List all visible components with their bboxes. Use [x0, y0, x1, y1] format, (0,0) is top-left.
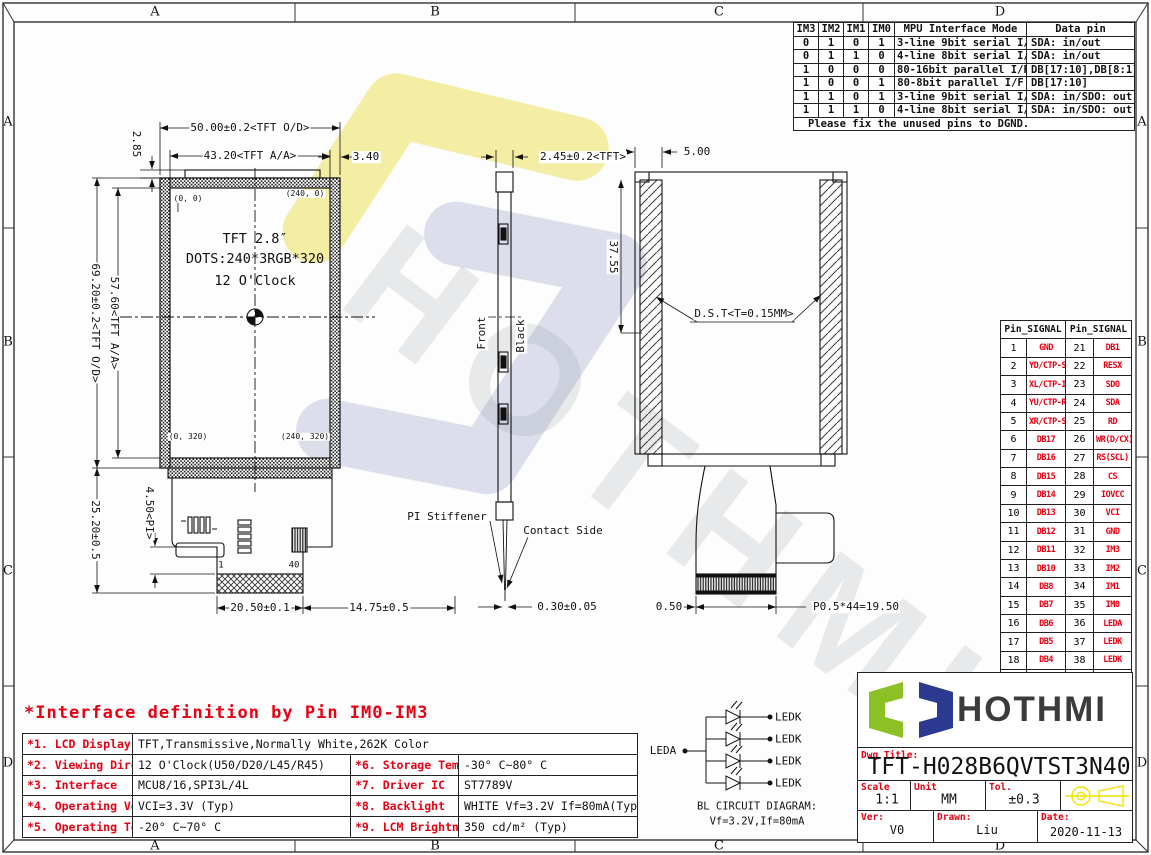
im-table-cell: 1 — [869, 90, 895, 104]
im-table-header: IM1 — [844, 23, 869, 37]
bl-caption-1: BL CIRCUIT DIAGRAM: — [696, 801, 818, 812]
ledk-terminal — [768, 781, 772, 785]
dim-back-height: 37.55 — [607, 239, 619, 274]
spec-value: MCU8/16,SPI3L/4L — [133, 775, 351, 796]
led-diode-icon — [726, 710, 740, 724]
dim-half: 0.50 — [655, 601, 684, 613]
pin-number: 38 — [1066, 651, 1094, 669]
pin-number: 28 — [1066, 468, 1094, 486]
pin-signal: CS — [1094, 468, 1132, 486]
pin-number: 24 — [1066, 394, 1094, 412]
im-table-cell: 4-line 8bit serial I/F — [895, 50, 1027, 64]
im-table-cell: SDA: in/out — [1027, 50, 1135, 64]
im-table-cell: SDA: in/SDO: out — [1027, 90, 1135, 104]
pin-number: 29 — [1066, 486, 1094, 504]
spec-label: *2. Viewing Diretion — [23, 754, 133, 775]
dim-pi: 4.50<PI> — [143, 486, 155, 541]
pin-signal: XR/CTP-SCL — [1027, 412, 1066, 430]
spec-value: 12 O'Clock(U50/D20/L45/R45) — [133, 754, 351, 775]
pin-signal: DB6 — [1027, 615, 1066, 633]
im-table-header: Data pin — [1027, 23, 1135, 37]
spec-label: *4. Operating Voltage — [23, 796, 133, 817]
pin-number: 12 — [1001, 541, 1027, 559]
spec-value: -30° C~80° C — [459, 754, 638, 775]
pin-signal: VCI — [1094, 504, 1132, 522]
pin-signal: DB1 — [1094, 339, 1132, 357]
led-branch — [706, 701, 770, 724]
pin-signal: SDO — [1094, 376, 1132, 394]
spec-label: *7. Driver IC — [351, 775, 459, 796]
pin-signal: YD/CTP-SDA — [1027, 357, 1066, 375]
pin-number: 35 — [1066, 596, 1094, 614]
im-table-cell: 1 — [844, 50, 869, 64]
dim-connector-width: 20.50±0.1 — [229, 602, 291, 614]
pin-number: 4 — [1001, 394, 1027, 412]
im-table-cell: 0 — [869, 50, 895, 64]
pin-number: 33 — [1066, 559, 1094, 577]
pin-number: 31 — [1066, 523, 1094, 541]
spec-label: *1. LCD Display Type — [23, 734, 133, 755]
im-table-header: IM3 — [794, 23, 819, 37]
spec-table-title: *Interface definition by Pin IM0-IM3 — [24, 703, 428, 723]
dim-tail-thickness: 0.30±0.05 — [536, 601, 598, 613]
pin-signal: GND — [1094, 523, 1132, 541]
pin-signal: SDA — [1094, 394, 1132, 412]
im-table-cell: 0 — [794, 36, 819, 50]
tol-value: ±0.3 — [1008, 793, 1039, 808]
im-table-cell: 1 — [844, 104, 869, 118]
scale-value: 1:1 — [875, 793, 898, 808]
front-label: Front — [476, 315, 488, 350]
im-table-cell: 0 — [844, 77, 869, 91]
contact-side-label: Contact Side — [522, 525, 603, 537]
spec-value: ST7789V — [459, 775, 638, 796]
pin-number: 21 — [1066, 339, 1094, 357]
im-table-header: IM0 — [869, 23, 895, 37]
pin-signal: LEDK — [1094, 633, 1132, 651]
pin-signal: WR(D/CX) — [1094, 431, 1132, 449]
pin-number: 2 — [1001, 357, 1027, 375]
im-table-footer: Please fix the unused pins to DGND. — [794, 117, 1135, 131]
pin-number: 18 — [1001, 651, 1027, 669]
pin-signal: DB10 — [1027, 559, 1066, 577]
pin-number: 8 — [1001, 468, 1027, 486]
brand-wordmark: HOTHMI — [957, 690, 1107, 730]
pin-signal: DB4 — [1027, 651, 1066, 669]
unit-label: Unit — [914, 782, 937, 793]
im-table-cell: 0 — [844, 90, 869, 104]
im-table-cell: 1 — [794, 77, 819, 91]
pin-signal: RD — [1094, 412, 1132, 430]
dim-od-width: 50.00±0.2<TFT O/D> — [189, 122, 310, 134]
pin-signal: DB17 — [1027, 431, 1066, 449]
drawn-value: Liu — [976, 823, 998, 837]
corner-label-br: (240, 320) — [280, 433, 330, 441]
dwg-title-value: TFT-H028B6QVTST3N40 — [867, 754, 1130, 780]
pin-signal: LEDK — [1094, 651, 1132, 669]
im-table-cell: 3-line 9bit serial I/F Ⅱ — [895, 90, 1027, 104]
ver-label: Ver: — [861, 812, 884, 823]
panel-label-dots: DOTS:240*3RGB*320 — [185, 252, 325, 266]
ledk-label: LEDK — [774, 777, 803, 790]
im-table-cell: 80-16bit parallel I/F — [895, 63, 1027, 77]
pin40-label: 40 — [288, 561, 301, 570]
pin-number: 23 — [1066, 376, 1094, 394]
spec-value: 350 cd/m² (Typ) — [459, 817, 638, 838]
im-table-cell: 4-line 8bit serial I/F Ⅱ — [895, 104, 1027, 118]
ledk-terminal — [768, 715, 772, 719]
spec-value: VCI=3.3V (Typ) — [133, 796, 351, 817]
led-diode-icon — [726, 754, 740, 768]
im-table-cell: DB[17:10] — [1027, 77, 1135, 91]
im-table-header: IM2 — [819, 23, 844, 37]
pin-number: 11 — [1001, 523, 1027, 541]
pin-signal: DB14 — [1027, 486, 1066, 504]
pin-signal: IM1 — [1094, 578, 1132, 596]
im-table-cell: 3-line 9bit serial I/F — [895, 36, 1027, 50]
pin-signal: IM0 — [1094, 596, 1132, 614]
corner-label-tl: (0, 0) — [173, 195, 204, 203]
panel-label-size: TFT 2.8″ — [221, 232, 288, 246]
date-label: Date: — [1041, 812, 1070, 823]
im-interface-table: IM3IM2IM1IM0MPU Interface ModeData pin01… — [793, 22, 1135, 131]
pin-number: 25 — [1066, 412, 1094, 430]
led-diode-icon — [726, 776, 740, 790]
corner-label-tr: (240, 0) — [285, 190, 326, 198]
im-table-cell: 0 — [794, 50, 819, 64]
ver-value: V0 — [890, 823, 904, 837]
led-branch — [706, 745, 770, 768]
pin-signal: GND — [1027, 339, 1066, 357]
im-table-cell: 0 — [819, 63, 844, 77]
im-table-cell: 1 — [819, 90, 844, 104]
ledk-label: LEDK — [774, 711, 803, 724]
back-view-drawing — [635, 172, 847, 594]
black-label: Black — [515, 318, 527, 353]
date-value: 2020-11-13 — [1050, 825, 1122, 839]
bl-caption-2: Vf=3.2V,If=80mA — [709, 816, 806, 827]
im-table-cell: 80-8bit parallel I/F — [895, 77, 1027, 91]
pin-number: 22 — [1066, 357, 1094, 375]
pin-signal: DB16 — [1027, 449, 1066, 467]
pin-signal: DB13 — [1027, 504, 1066, 522]
side-view-drawing — [486, 172, 524, 601]
dim-fpc-height: 25.20±0.5 — [89, 499, 101, 561]
im-table-cell: 1 — [869, 77, 895, 91]
pin-number: 30 — [1066, 504, 1094, 522]
im-table-header: MPU Interface Mode — [895, 23, 1027, 37]
pin-signal: DB5 — [1027, 633, 1066, 651]
pin-number: 36 — [1066, 615, 1094, 633]
dim-aa-width: 43.20<TFT A/A> — [203, 150, 298, 162]
drawn-label: Drawn: — [937, 812, 971, 823]
dim-right-margin: 3.40 — [352, 151, 381, 163]
dim-od-height: 69.20±0.2<TFT O/D> — [89, 262, 101, 383]
pin-number: 9 — [1001, 486, 1027, 504]
spec-value: WHITE Vf=3.2V If=80mA(Typ) — [459, 796, 638, 817]
pin-number: 32 — [1066, 541, 1094, 559]
pin-signal: LEDA — [1094, 615, 1132, 633]
im-table-cell: 0 — [844, 36, 869, 50]
ledk-label: LEDK — [774, 755, 803, 768]
pin-number: 15 — [1001, 596, 1027, 614]
pin-number: 17 — [1001, 633, 1027, 651]
led-branch — [706, 767, 770, 790]
spec-label: *3. Interface — [23, 775, 133, 796]
spec-value: -20° C~70° C — [133, 817, 351, 838]
dim-aa-height: 57.60<TFT A/A> — [108, 276, 120, 371]
pin-signal: IM3 — [1094, 541, 1132, 559]
pin-signal: IM2 — [1094, 559, 1132, 577]
pin-signal: DB12 — [1027, 523, 1066, 541]
pin-signal-table: Pin_SIGNALPin_SIGNAL1GND21DB12YD/CTP-SDA… — [1000, 320, 1132, 707]
pin-signal: DB8 — [1027, 578, 1066, 596]
im-table-cell: 1 — [819, 50, 844, 64]
ledk-terminal — [768, 737, 772, 741]
pin-number: 37 — [1066, 633, 1094, 651]
projection-symbol-icon — [1065, 784, 1129, 808]
pin-signal: RESX — [1094, 357, 1132, 375]
hothmi-logo-icon — [865, 678, 957, 742]
pin-number: 3 — [1001, 376, 1027, 394]
pin-signal: XL/CTP-INT — [1027, 376, 1066, 394]
dim-edge-width: 5.00 — [683, 146, 712, 158]
pin-number: 13 — [1001, 559, 1027, 577]
pin-table-header: Pin_SIGNAL — [1001, 321, 1066, 339]
pin-number: 27 — [1066, 449, 1094, 467]
pin-number: 16 — [1001, 615, 1027, 633]
im-table-cell: 1 — [794, 90, 819, 104]
pin-signal: YU/CTP-RES — [1027, 394, 1066, 412]
im-table-cell: 0 — [869, 104, 895, 118]
spec-table: *1. LCD Display TypeTFT,Transmissive,Nor… — [22, 733, 638, 838]
pin-number: 6 — [1001, 431, 1027, 449]
dim-thickness: 2.45±0.2<TFT> — [539, 151, 627, 163]
pin-signal: RS(SCL) — [1094, 449, 1132, 467]
pin-signal: IOVCC — [1094, 486, 1132, 504]
dim-top-margin: 2.85 — [130, 130, 142, 159]
leda-label: LEDA — [649, 745, 678, 757]
spec-label: *9. LCM Brightness — [351, 817, 459, 838]
im-table-cell: 1 — [819, 104, 844, 118]
im-table-cell: SDA: in/out — [1027, 36, 1135, 50]
led-diode-icon — [726, 732, 740, 746]
dim-pitch: P0.5*44=19.50 — [812, 601, 900, 613]
bl-circuit-drawing — [683, 701, 772, 790]
pin-signal: DB7 — [1027, 596, 1066, 614]
spec-label: *5. Operating Temp — [23, 817, 133, 838]
pin-number: 7 — [1001, 449, 1027, 467]
im-table-cell: SDA: in/SDO: out — [1027, 104, 1135, 118]
pi-stiffener-label: PI Stiffener — [406, 511, 487, 523]
pin-number: 1 — [1001, 339, 1027, 357]
pin-signal: DB11 — [1027, 541, 1066, 559]
pin-number: 26 — [1066, 431, 1094, 449]
spec-label: *6. Storage Temp — [351, 754, 459, 775]
unit-value: MM — [941, 793, 957, 808]
ledk-terminal — [768, 759, 772, 763]
panel-label-clock: 12 O'Clock — [213, 274, 296, 288]
pin-table-header: Pin_SIGNAL — [1066, 321, 1132, 339]
im-table-cell: 0 — [819, 77, 844, 91]
ledk-label: LEDK — [774, 733, 803, 746]
side-view-dimensions — [478, 150, 532, 607]
pin-number: 5 — [1001, 412, 1027, 430]
spec-label: *8. Backlight — [351, 796, 459, 817]
tol-label: Tol. — [989, 782, 1012, 793]
pin-number: 34 — [1066, 578, 1094, 596]
corner-label-bl: (0, 320) — [168, 433, 209, 441]
led-branch — [706, 723, 770, 746]
pin-signal: DB15 — [1027, 468, 1066, 486]
dim-connector-offset: 14.75±0.5 — [348, 602, 410, 614]
im-table-cell: 1 — [794, 104, 819, 118]
im-table-cell: 1 — [794, 63, 819, 77]
im-table-cell: 0 — [844, 63, 869, 77]
scale-label: Scale — [861, 782, 890, 793]
title-block: HOTHMI Dwg Title: TFT-H028B6QVTST3N40 Sc… — [857, 672, 1133, 843]
dst-label: D.S.T<T=0.15MM> — [693, 308, 794, 320]
im-table-cell: 0 — [869, 63, 895, 77]
im-table-cell: 1 — [869, 36, 895, 50]
spec-value: TFT,Transmissive,Normally White,262K Col… — [133, 734, 638, 755]
pin1-label: 1 — [217, 561, 224, 570]
engineering-drawing-sheet: { "frame": {"zones_h": ["A","B","C","D"]… — [0, 0, 1151, 855]
pin-number: 14 — [1001, 578, 1027, 596]
im-table-cell: DB[17:10],DB[8:1] — [1027, 63, 1135, 77]
pin-number: 10 — [1001, 504, 1027, 522]
im-table-cell: 1 — [819, 36, 844, 50]
